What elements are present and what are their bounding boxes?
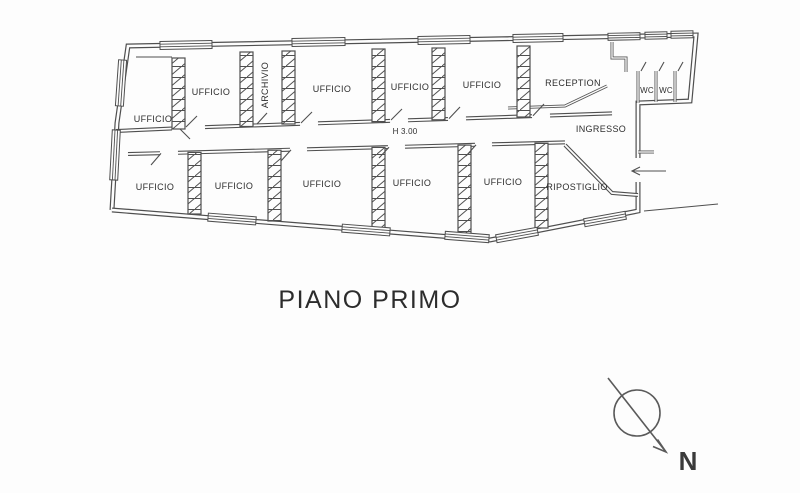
wc-and-entrance-walls bbox=[508, 42, 675, 195]
room-label-reception: RECEPTION bbox=[545, 78, 601, 88]
room-label-wc: WC bbox=[659, 86, 673, 95]
compass-circle-icon bbox=[614, 390, 660, 436]
compass-arrowhead-icon bbox=[653, 440, 666, 453]
room-label-ingresso: INGRESSO bbox=[576, 124, 626, 134]
room-label-wc: WC bbox=[640, 86, 654, 95]
scanned-floor-plan-page: UFFICIO UFFICIO ARCHIVIO UFFICIO UFFICIO… bbox=[0, 0, 800, 493]
height-annotation: H 3.00 bbox=[393, 127, 418, 136]
floor-plan-drawing: UFFICIO UFFICIO ARCHIVIO UFFICIO UFFICIO… bbox=[0, 0, 800, 493]
room-label-ufficio: UFFICIO bbox=[134, 114, 172, 124]
page-title: PIANO PRIMO bbox=[278, 286, 461, 314]
room-label-ufficio: UFFICIO bbox=[463, 80, 501, 90]
room-label-ufficio: UFFICIO bbox=[391, 82, 429, 92]
compass-needle-icon bbox=[608, 378, 666, 452]
room-label-ufficio: UFFICIO bbox=[192, 87, 230, 97]
room-label-ufficio: UFFICIO bbox=[313, 84, 351, 94]
terrain-line bbox=[644, 204, 718, 211]
room-label-ufficio: UFFICIO bbox=[215, 181, 253, 191]
north-label: N bbox=[679, 446, 698, 476]
room-label-ufficio: UFFICIO bbox=[484, 177, 522, 187]
north-compass: N bbox=[608, 378, 697, 476]
room-label-ufficio: UFFICIO bbox=[303, 179, 341, 189]
room-label-ufficio: UFFICIO bbox=[393, 178, 431, 188]
entrance-arrow bbox=[632, 167, 666, 175]
room-label-archivio: ARCHIVIO bbox=[260, 62, 270, 108]
room-label-ripostiglio: RIPOSTIGLIO bbox=[546, 182, 607, 192]
room-label-ufficio: UFFICIO bbox=[136, 182, 174, 192]
